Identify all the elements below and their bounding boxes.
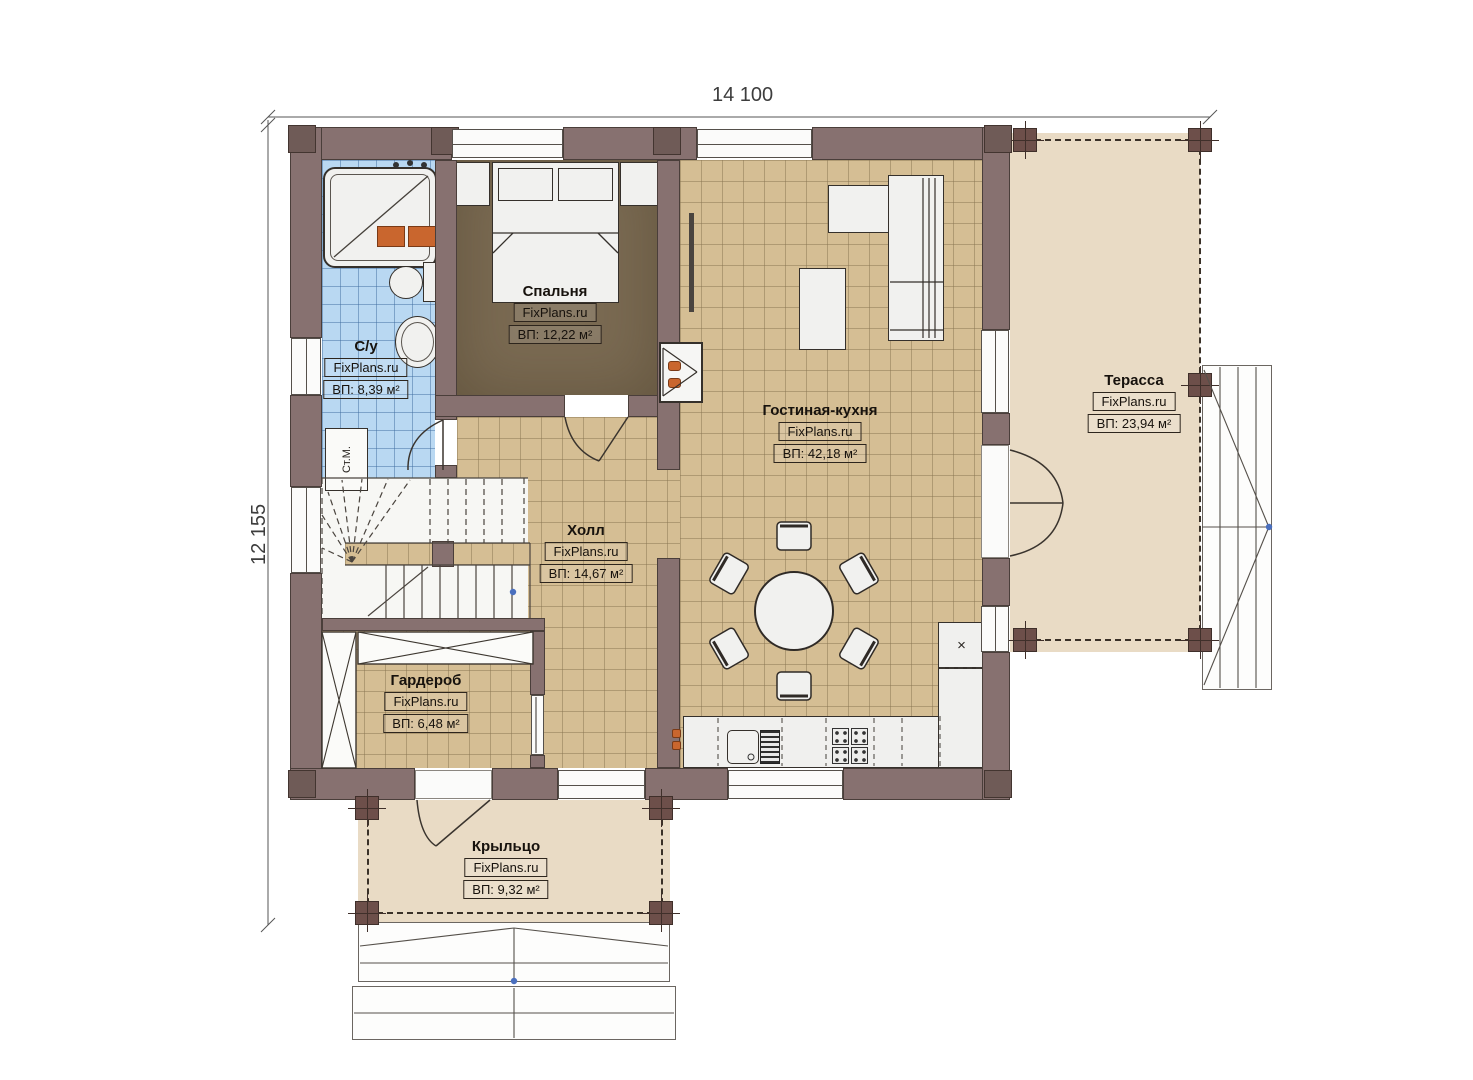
porch-post [355,796,379,820]
window [697,129,812,158]
cabinet-mark: × [957,637,966,654]
oven [760,730,780,764]
kitchen-counter [938,668,985,768]
room-area: ВП: 8,39 м² [323,380,408,399]
room-label-wardrobe: Гардероб FixPlans.ru ВП: 6,48 м² [383,672,468,733]
wall [290,127,322,338]
window [291,487,321,573]
stove-burner [851,747,868,764]
terrace-post [1188,128,1212,152]
wall [530,755,545,768]
kitchen-vent [672,741,681,750]
window [981,606,1009,652]
room-label-bathroom: С/у FixPlans.ru ВП: 8,39 м² [323,338,408,399]
fireplace-vent [668,378,681,388]
room-label-living-kitchen: Гостиная-кухня FixPlans.ru ВП: 42,18 м² [763,402,878,463]
wall [435,160,457,420]
room-label-terrace: Терасса FixPlans.ru ВП: 23,94 м² [1088,372,1181,433]
room-name: Гостиная-кухня [763,402,878,419]
wall-corner [984,125,1012,153]
wall [435,395,565,417]
stove-burner [832,747,849,764]
dimension-width-label: 14 100 [712,84,773,107]
porch-steps-upper [358,922,670,982]
washing-machine-label: Ст.М. [341,446,353,473]
wall [657,160,680,470]
sofa [888,175,944,341]
room-area: ВП: 9,32 м² [463,880,548,899]
room-name: С/у [354,338,377,355]
terrace-post [1188,373,1212,397]
fireplace [659,342,703,403]
coffee-table [799,268,846,350]
bath-shelf [408,226,437,247]
window [558,770,645,799]
kitchen-counter [683,716,939,768]
kitchen-vent [672,729,681,738]
pillow [498,168,553,201]
entry-door-opening [415,770,492,799]
wall-corner [288,125,316,153]
porch-post [649,796,673,820]
watermark: FixPlans.ru [544,542,627,561]
wall [290,395,322,487]
room-label-hall: Холл FixPlans.ru ВП: 14,67 м² [540,522,633,583]
tv-unit [689,213,694,312]
window [291,338,321,395]
watermark: FixPlans.ru [384,692,467,711]
room-name: Холл [567,522,605,539]
floor-plan: 14 100 12 155 [0,0,1473,1080]
room-name: Терасса [1104,372,1163,389]
window [452,129,563,158]
wall [982,127,1010,330]
watermark: FixPlans.ru [513,303,596,322]
wall [530,631,545,695]
toilet-bowl [389,266,423,299]
wall-corner [984,770,1012,798]
stove-burner [832,728,849,745]
wall [492,768,558,800]
watermark: FixPlans.ru [324,358,407,377]
porch-post [355,901,379,925]
terrace-steps [1202,365,1272,690]
room-area: ВП: 23,94 м² [1088,414,1181,433]
watermark: FixPlans.ru [464,858,547,877]
window [981,330,1009,413]
wall [812,127,1010,160]
stair-wall-stub [432,541,454,567]
kitchen-sink [727,730,759,764]
wall [290,573,322,800]
room-name: Спальня [523,283,588,300]
nightstand [620,162,658,206]
wall [982,413,1010,445]
room-label-porch: Крыльцо FixPlans.ru ВП: 9,32 м² [463,838,548,899]
room-name: Крыльцо [472,838,540,855]
room-label-bedroom: Спальня FixPlans.ru ВП: 12,22 м² [509,283,602,344]
room-area: ВП: 14,67 м² [540,564,633,583]
terrace-post [1013,628,1037,652]
terrace-door-opening [981,445,1009,558]
washing-machine: Ст.М. [325,428,368,491]
wall-corner [288,770,316,798]
wall [982,558,1010,606]
nightstand [452,162,490,206]
watermark: FixPlans.ru [778,422,861,441]
room-name: Гардероб [391,672,462,689]
room-area: ВП: 12,22 м² [509,325,602,344]
bath-shelf [377,226,405,247]
porch-steps-lower [352,986,676,1040]
room-area: ВП: 42,18 м² [774,444,867,463]
stove-burner [851,728,868,745]
kitchen-cabinet: × [938,622,985,668]
dimension-height-label: 12 155 [248,504,271,565]
window [728,770,843,799]
porch-post [649,901,673,925]
bathtub [323,167,437,268]
terrace-post [1188,628,1212,652]
watermark: FixPlans.ru [1092,392,1175,411]
terrace-post [1013,128,1037,152]
wall [435,465,457,478]
wardrobe-door [531,695,544,755]
pillow [558,168,613,201]
wall-junction [653,127,681,155]
fireplace-vent [668,361,681,371]
wall [322,618,545,631]
room-area: ВП: 6,48 м² [383,714,468,733]
